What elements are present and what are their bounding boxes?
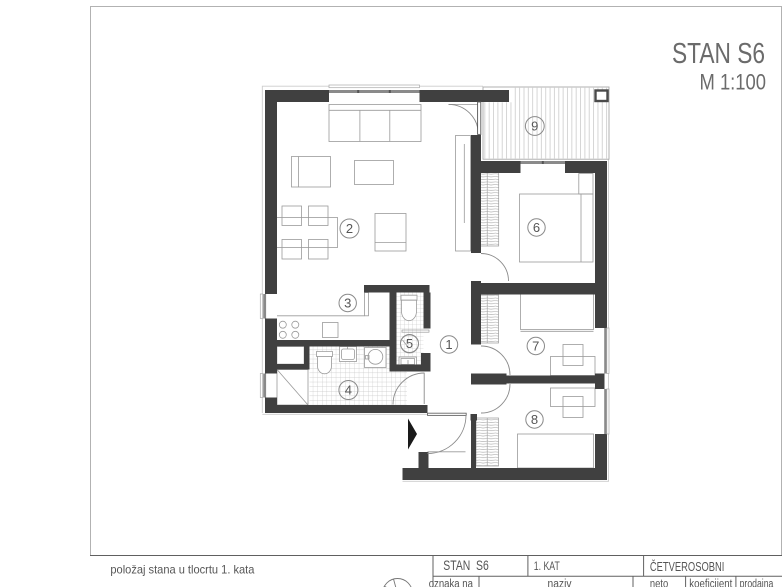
svg-text:9: 9 bbox=[531, 119, 538, 134]
svg-text:2: 2 bbox=[346, 221, 353, 236]
svg-text:prodajna: prodajna bbox=[740, 578, 774, 587]
svg-text:5: 5 bbox=[406, 336, 413, 351]
svg-text:M 1:100: M 1:100 bbox=[700, 69, 767, 94]
svg-text:1. KAT: 1. KAT bbox=[534, 561, 560, 573]
svg-text:7: 7 bbox=[532, 339, 539, 354]
svg-text:1: 1 bbox=[445, 337, 452, 352]
svg-text:STAN S6: STAN S6 bbox=[443, 558, 489, 573]
svg-text:STAN S6: STAN S6 bbox=[672, 38, 765, 70]
svg-text:položaj stana u tlocrtu 1. kat: položaj stana u tlocrtu 1. kata bbox=[110, 563, 254, 577]
svg-text:oznaka na: oznaka na bbox=[429, 578, 474, 587]
svg-text:naziv: naziv bbox=[548, 578, 572, 587]
svg-text:neto: neto bbox=[650, 578, 668, 587]
svg-text:4: 4 bbox=[345, 383, 352, 398]
svg-text:8: 8 bbox=[531, 412, 538, 427]
svg-text:6: 6 bbox=[533, 220, 540, 235]
svg-text:3: 3 bbox=[344, 296, 351, 311]
svg-text:koeficijent: koeficijent bbox=[689, 578, 733, 587]
svg-text:ČETVEROSOBNI: ČETVEROSOBNI bbox=[650, 559, 725, 574]
